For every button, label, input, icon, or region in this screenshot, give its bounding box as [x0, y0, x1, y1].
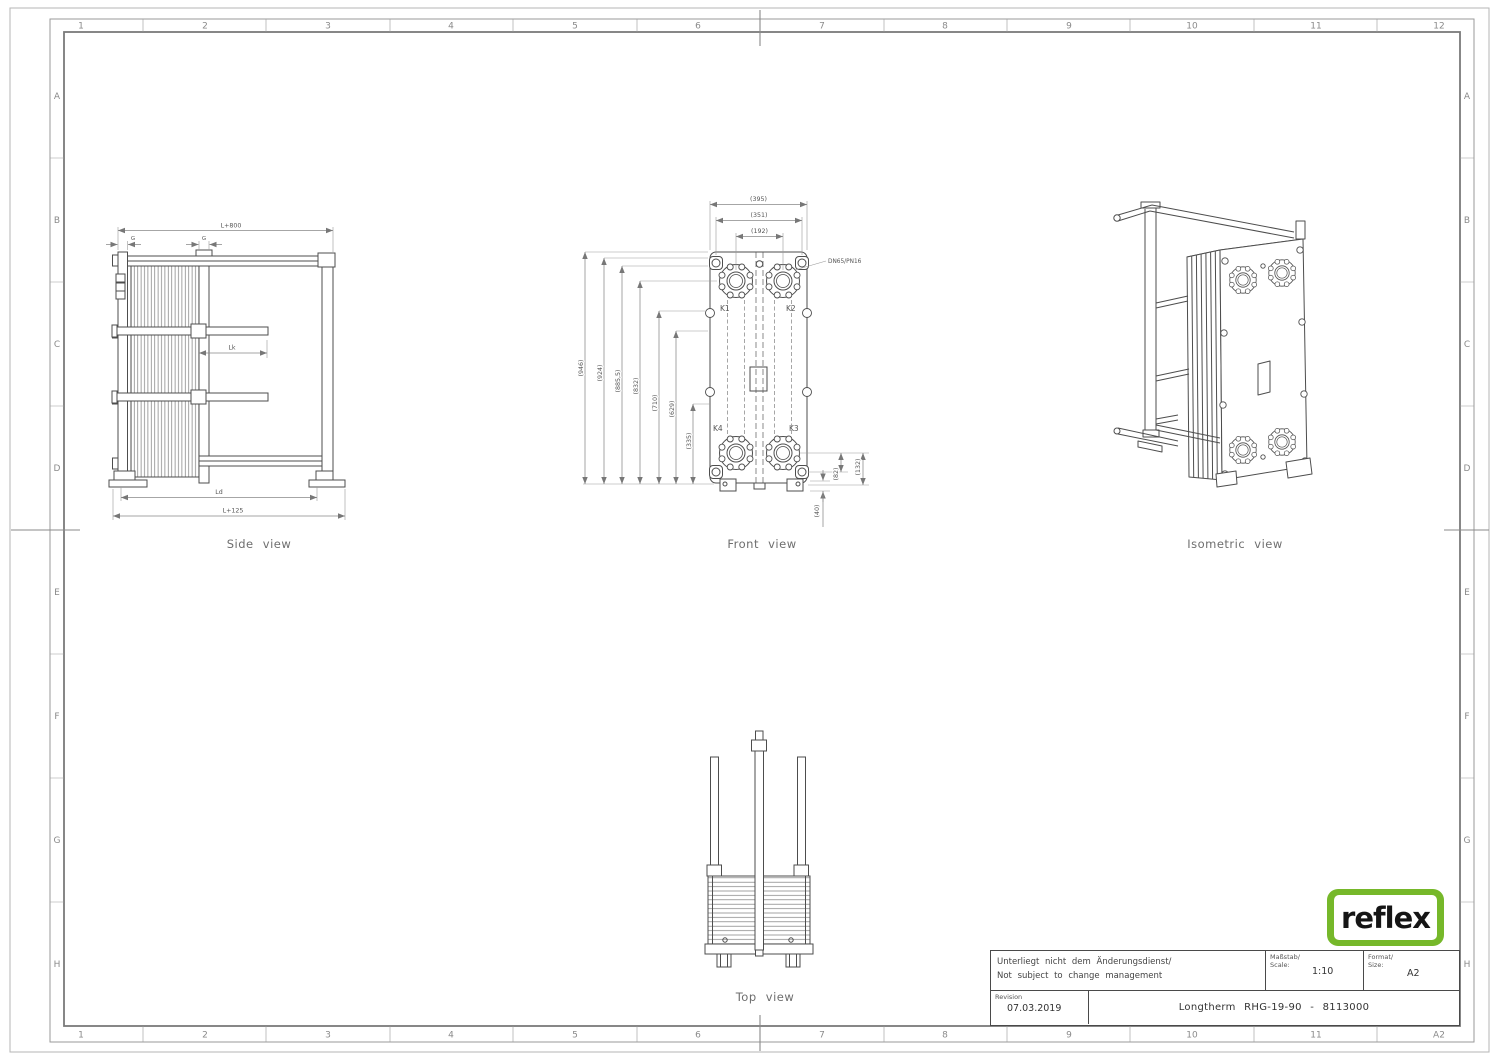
side-view: L+800 G G Lk Ld L+125: [106, 223, 345, 521]
change-note: Unterliegt nicht dem Änderungsdienst/ No…: [991, 951, 1266, 990]
zone-label: B: [1464, 216, 1470, 226]
dim-label: (351): [751, 212, 768, 219]
support-column: [322, 255, 333, 480]
dim-label: (82): [833, 468, 840, 481]
foot: [717, 954, 731, 967]
scale-cell: Maßstab/ Scale: 1:10: [1266, 951, 1364, 990]
dim-label: (924): [597, 365, 604, 382]
zone-label: G: [1464, 836, 1471, 846]
zone-label: 12: [1433, 22, 1444, 32]
carrying-bar: [755, 744, 764, 950]
port-k4: [719, 436, 753, 470]
foot: [316, 471, 333, 480]
format-label-de: Format/: [1368, 953, 1393, 961]
tightening-bolt: [711, 757, 719, 867]
side-view-caption: Side view: [227, 537, 292, 551]
zone-label: 7: [819, 1031, 825, 1041]
zone-label: 9: [1066, 1031, 1072, 1041]
zone-label: F: [54, 712, 59, 722]
foot: [787, 479, 803, 491]
zone-label: 10: [1186, 1031, 1198, 1041]
zone-label: H: [1464, 960, 1471, 970]
top-view: [705, 731, 813, 967]
port-k3: [766, 436, 800, 470]
zone-label: H: [54, 960, 61, 970]
reflex-logo-text: reflex: [1334, 895, 1437, 940]
front-view-caption: Front view: [727, 537, 796, 551]
port: [1268, 259, 1295, 286]
zone-label: 6: [695, 22, 701, 32]
drawing-canvas: 1 2 3 4 5 6 7 8 9 10 11 12 1 2 3 4 5 6 7…: [0, 0, 1500, 1061]
plate-pack: [131, 266, 199, 477]
zone-label: D: [54, 464, 61, 474]
isometric-view-caption: Isometric view: [1187, 537, 1283, 551]
dim-label: (832): [633, 378, 640, 395]
zone-label: E: [54, 588, 60, 598]
dim-label: (395): [750, 196, 767, 203]
dim-label: Lk: [228, 345, 236, 352]
port-label-k2: K2: [786, 304, 796, 313]
support-column: [1141, 202, 1160, 437]
dim-label: G: [131, 236, 135, 242]
revision-label: Revision: [995, 993, 1022, 1001]
zone-label: D: [1464, 464, 1471, 474]
side-frame-geometry: [109, 250, 345, 487]
tightening-bolts: [1156, 296, 1189, 424]
top-view-caption: Top view: [735, 990, 795, 1004]
tightening-bolt: [798, 757, 806, 867]
zone-label: 5: [572, 1031, 578, 1041]
dim-label: (132): [855, 459, 862, 476]
dim-label: (946): [578, 360, 585, 377]
zone-label: B: [54, 216, 60, 226]
zone-label: 9: [1066, 22, 1072, 32]
zone-label: A: [1464, 92, 1471, 102]
format-label-en: Size:: [1368, 961, 1393, 969]
revision-date: 07.03.2019: [1007, 1003, 1061, 1014]
zone-label: G: [54, 836, 61, 846]
zone-label: 11: [1310, 22, 1321, 32]
scale-value: 1:10: [1312, 966, 1333, 977]
zone-label: A2: [1433, 1031, 1445, 1041]
zone-label: C: [1464, 340, 1470, 350]
foot: [720, 479, 736, 491]
scale-label-en: Scale:: [1270, 961, 1300, 969]
dim-label: (40): [814, 505, 821, 518]
title-block: Unterliegt nicht dem Änderungsdienst/ No…: [990, 950, 1460, 1026]
zone-label: 1: [78, 22, 84, 32]
zone-label: 4: [448, 22, 454, 32]
drawing-title: Longtherm RHG-19-90 - 8113000: [1089, 991, 1459, 1024]
zone-label: 6: [695, 1031, 701, 1041]
dim-label: (629): [669, 401, 676, 418]
zone-label: 8: [942, 1031, 948, 1041]
zone-label: 10: [1186, 22, 1198, 32]
port: [1268, 428, 1295, 455]
scale-label-de: Maßstab/: [1270, 953, 1300, 961]
reflex-logo: reflex: [1327, 889, 1444, 946]
format-cell: Format/ Size: A2: [1364, 951, 1458, 990]
zone-label: 7: [819, 22, 825, 32]
dim-label: (710): [652, 395, 659, 412]
lifting-hole: [756, 261, 763, 268]
dim-label: G: [202, 236, 206, 242]
change-note-de: Unterliegt nicht dem Änderungsdienst/: [997, 955, 1259, 969]
zone-label: F: [1464, 712, 1469, 722]
zone-label: A: [54, 92, 61, 102]
foot: [786, 954, 800, 967]
change-note-en: Not subject to change management: [997, 969, 1259, 983]
zone-label: 2: [202, 22, 208, 32]
port-label-k1: K1: [720, 304, 730, 313]
zone-label: 5: [572, 22, 578, 32]
front-view: K1 K2 K4 K3 DN65/PN16 (395) (351) (192) …: [578, 196, 869, 527]
zone-label: 8: [942, 22, 948, 32]
port-label-k4: K4: [713, 424, 723, 433]
pressure-plate: [199, 253, 209, 483]
revision-cell: Revision 07.03.2019: [991, 991, 1089, 1024]
zone-label: C: [54, 340, 60, 350]
dim-label: Ld: [215, 489, 223, 496]
dim-label: (335): [686, 433, 693, 450]
foot: [114, 471, 135, 480]
isometric-view: [1114, 202, 1312, 487]
zone-label: 11: [1310, 1031, 1321, 1041]
zone-label: 1: [78, 1031, 84, 1041]
carrying-bar: [1114, 205, 1305, 239]
dim-label: L+125: [223, 508, 244, 515]
zone-label: 4: [448, 1031, 454, 1041]
port: [1229, 266, 1256, 293]
port-label-k3: K3: [789, 424, 799, 433]
zone-label: 3: [325, 22, 331, 32]
dim-label: (885,5): [615, 370, 622, 393]
format-value: A2: [1407, 968, 1420, 979]
dim-label: L+800: [221, 223, 242, 230]
zone-label: 3: [325, 1031, 331, 1041]
zone-label: E: [1464, 588, 1470, 598]
dim-label: (192): [751, 228, 768, 235]
zone-label: 2: [202, 1031, 208, 1041]
port: [1229, 436, 1256, 463]
front-plate-geometry: [706, 252, 812, 491]
connection-label: DN65/PN16: [828, 259, 862, 265]
